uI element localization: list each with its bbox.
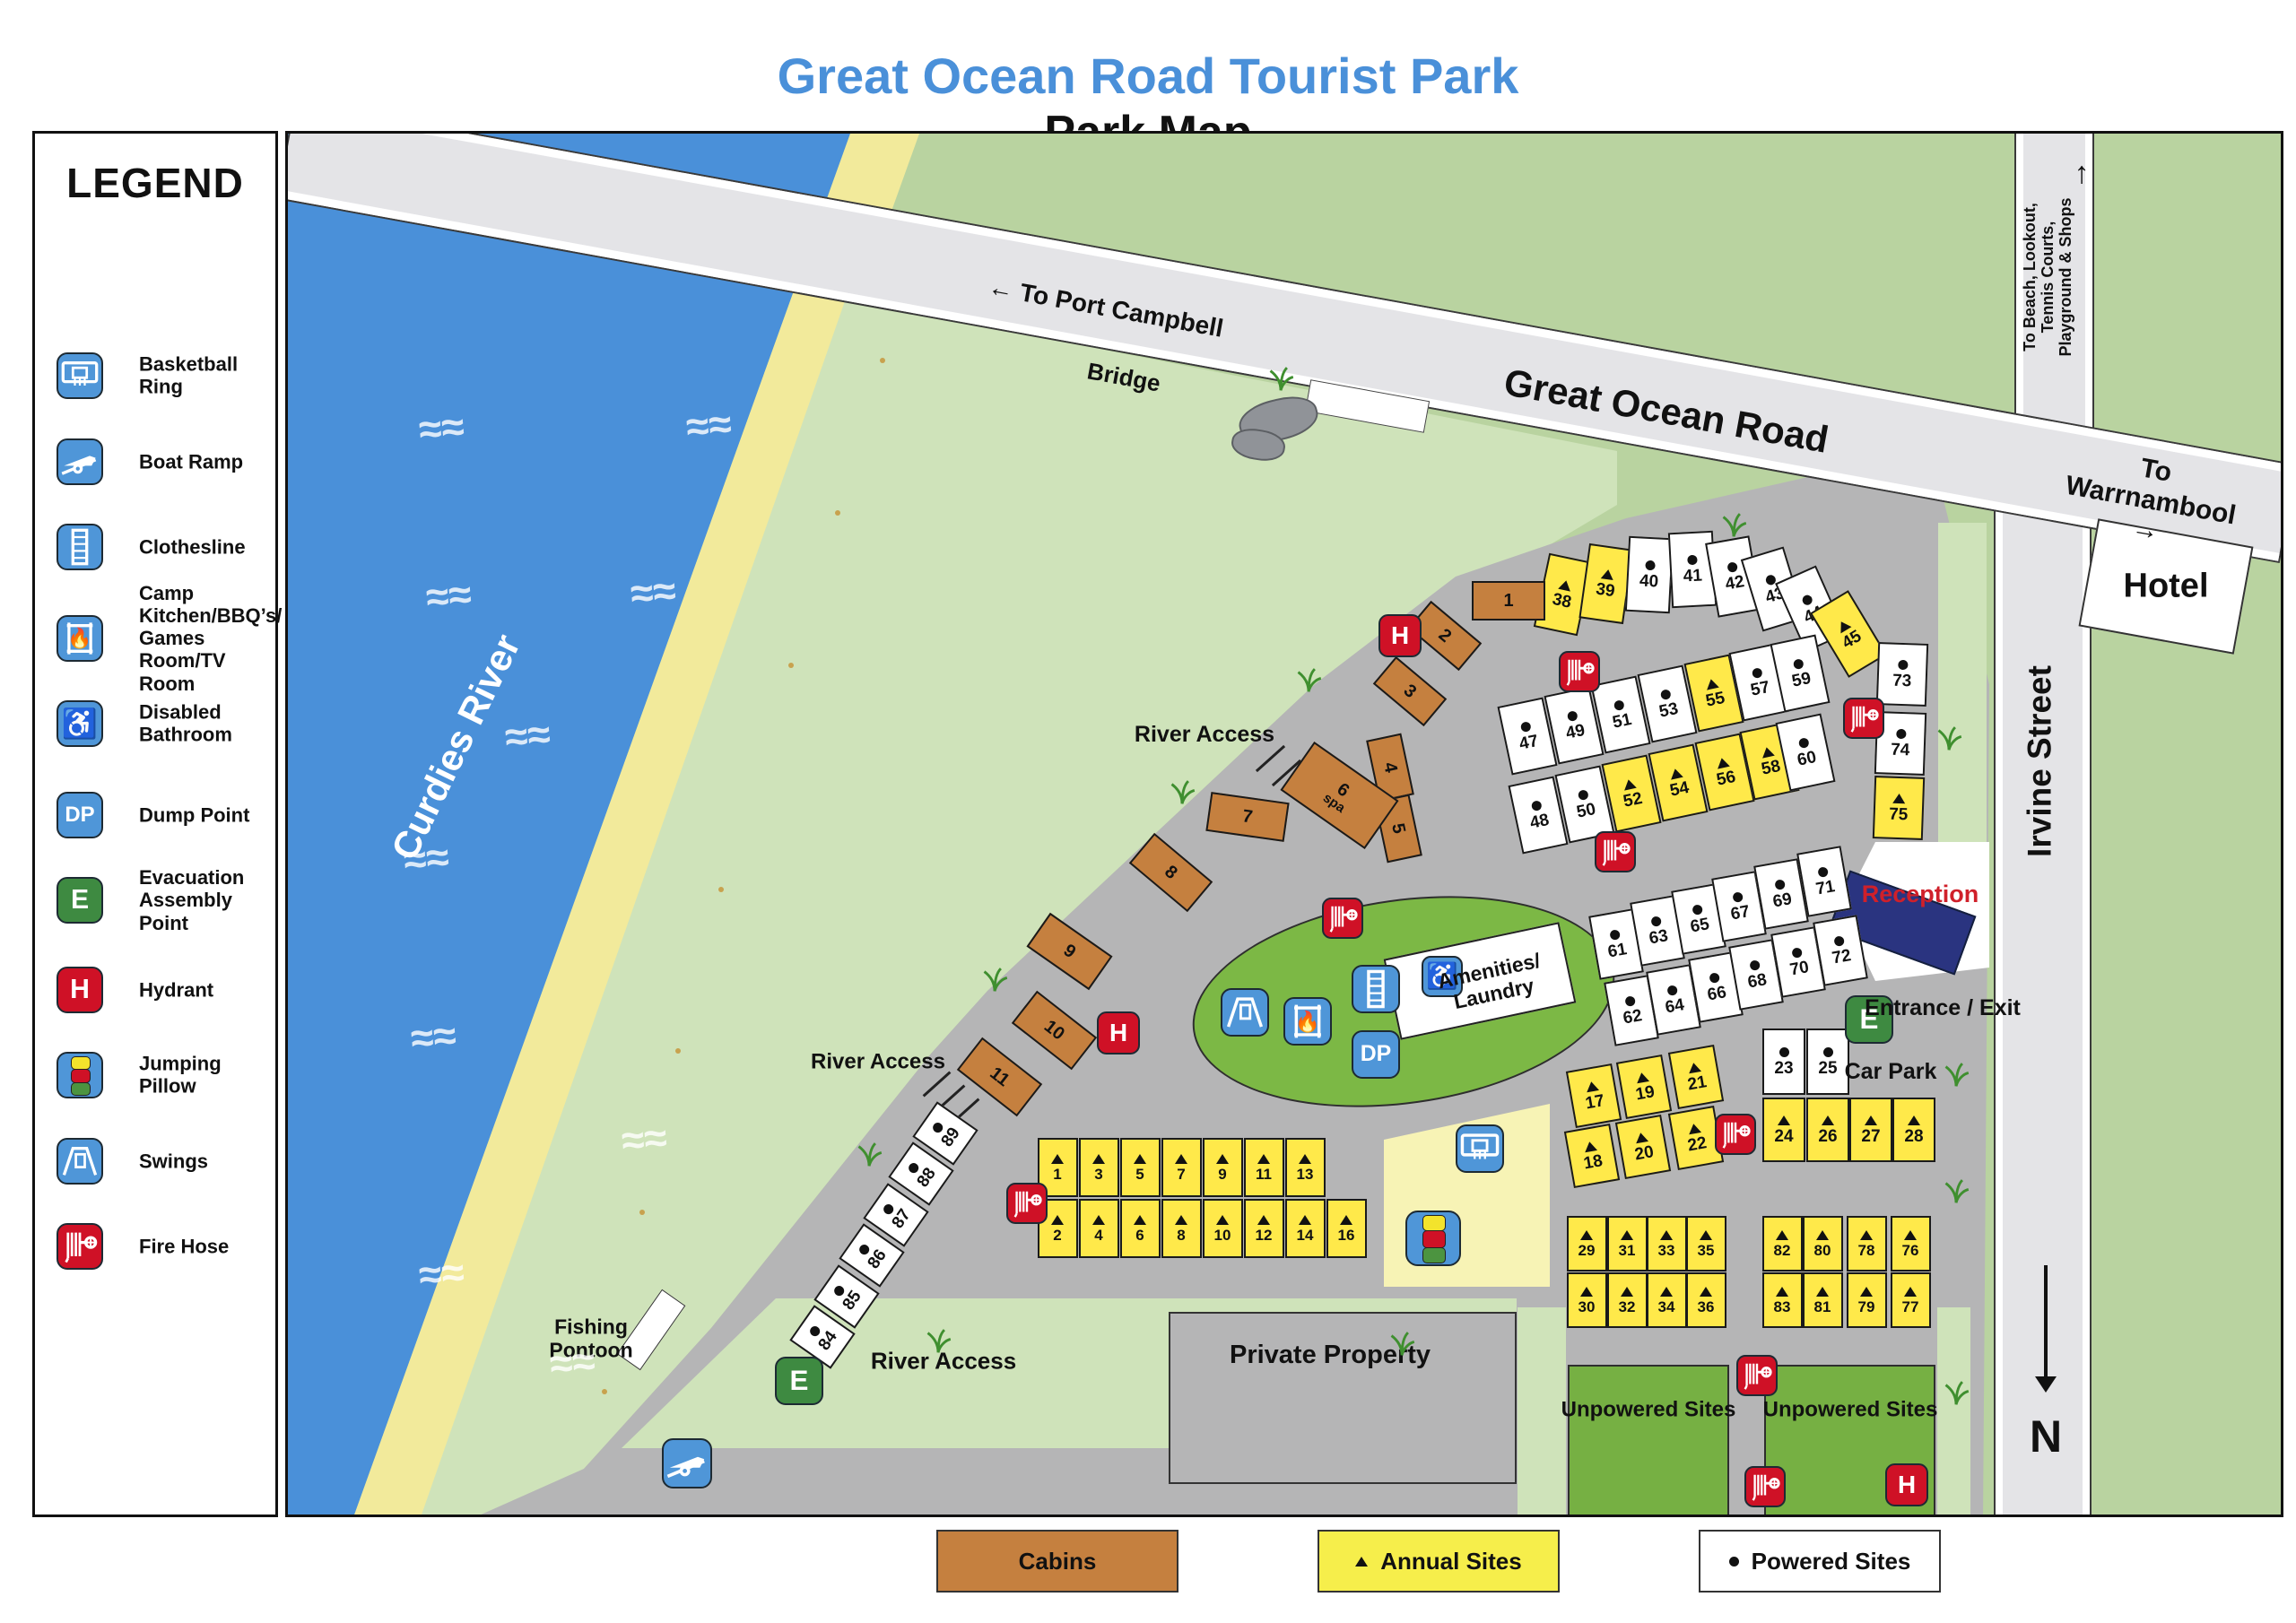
firehose-icon [1736,1355,1778,1396]
footer-cabins-label: Cabins [1019,1548,1097,1575]
annual-triangle-icon [1816,1287,1829,1297]
sand-dot [718,887,724,892]
site-number: 8 [1177,1228,1185,1243]
site-number: 20 [1633,1143,1655,1163]
powered-dot-icon [1666,985,1678,996]
hydrant-icon: H [1885,1463,1928,1506]
legend-item-jpillow: Jumping Pillow [57,1048,263,1102]
powered-dot-icon [1687,554,1698,565]
map-label-river-access-left: River Access [811,1051,945,1075]
grass-decoration [918,1315,959,1357]
site-number: 32 [1619,1299,1636,1315]
legend-item-label: Hydrant [139,978,213,1001]
legend-item-label: Boat Ramp [139,450,243,473]
annual-triangle-icon [1687,1062,1701,1073]
firehose-icon [1559,651,1600,692]
site-number: 54 [1668,778,1691,799]
footer-annual-box: Annual Sites [1318,1530,1560,1593]
site-number: 47 [1518,732,1540,752]
boat-icon [662,1438,712,1488]
site-number: 14 [1297,1228,1314,1243]
cabin-number: 3 [1400,681,1419,701]
annual-triangle-icon [1216,1154,1229,1164]
dp-icon: DP [57,792,103,838]
powered-dot-icon [1729,1557,1739,1567]
annual-triangle-icon [1716,756,1730,768]
annual-triangle-icon [1776,1230,1788,1240]
site-cell-83: 83 [1762,1272,1803,1328]
private-property-area [1169,1312,1517,1484]
site-number: 30 [1578,1299,1596,1315]
annual-triangle-icon [1860,1230,1873,1240]
site-cell-33: 33 [1647,1216,1687,1271]
site-cell-5: 5 [1120,1138,1161,1197]
legend-item-hydrant: HHydrant [57,963,263,1017]
site-cell-26: 26 [1806,1098,1849,1162]
grass-decoration [1935,1367,1977,1409]
annual-triangle-icon [1580,1230,1593,1240]
disabled-icon: ♿ [57,700,103,747]
firehose-icon [1715,1114,1756,1155]
site-number: 7 [1177,1167,1185,1182]
site-cell-30: 30 [1567,1272,1607,1328]
site-number: 78 [1858,1243,1875,1258]
legend-item-boat: Boat Ramp [57,435,263,489]
wave-decoration: ≈≈ [684,399,734,451]
site-cell-29: 29 [1567,1216,1607,1271]
site-number: 21 [1686,1073,1708,1093]
site-number: 77 [1902,1299,1919,1315]
site-number: 36 [1698,1299,1715,1315]
site-cell-76: 76 [1891,1216,1931,1271]
site-number: 23 [1774,1060,1793,1077]
sand-dot [675,1048,681,1054]
site-number: 71 [1814,878,1836,898]
unpowered-sites-area-left [1568,1365,1729,1517]
site-number: 41 [1683,567,1702,585]
annual-triangle-icon [1865,1115,1877,1125]
annual-triangle-icon [1092,1154,1105,1164]
powered-dot-icon [1726,561,1738,573]
page: Great Ocean Road Tourist Park Park Map L… [0,0,2296,1623]
site-number: 18 [1582,1152,1604,1172]
powered-dot-icon [1898,659,1908,669]
powered-dot-icon [1566,710,1578,722]
grass-decoration [848,1129,890,1170]
annual-triangle-icon [1051,1154,1064,1164]
site-number: 59 [1790,669,1813,690]
map-label-unpowered-left: Unpowered Sites [1561,1399,1736,1423]
site-cell-4: 4 [1079,1199,1119,1258]
site-number: 57 [1749,678,1771,699]
site-number: 66 [1706,984,1727,1003]
firehose-icon [57,1223,103,1270]
map-label-car-park: Car Park [1845,1059,1937,1084]
annual-triangle-icon [1660,1230,1673,1240]
map-label-n-compass: N [2030,1411,2062,1462]
legend-item-firehose: Fire Hose [57,1219,263,1273]
annual-triangle-icon [1134,1215,1146,1225]
annual-triangle-icon [1621,1230,1633,1240]
site-number: 13 [1297,1167,1314,1182]
sand-dot [602,1389,607,1394]
site-number: 52 [1622,789,1644,810]
site-cell-28: 28 [1892,1098,1935,1162]
site-number: 1 [1053,1167,1061,1182]
site-cell-13: 13 [1285,1138,1326,1197]
site-number: 11 [1256,1167,1272,1182]
camp-icon: 🔥 [1283,997,1332,1046]
hydrant-icon: H [1378,614,1422,657]
wave-decoration: ≈≈ [402,832,451,884]
powered-dot-icon [1624,995,1636,1007]
site-cell-79: 79 [1847,1272,1887,1328]
firehose-icon [1843,698,1884,739]
powered-dot-icon [1659,689,1671,700]
site-number: 63 [1648,927,1669,947]
jpillow-icon [57,1052,103,1098]
site-number: 73 [1892,672,1912,690]
cabin-number: 8 [1161,863,1179,882]
map-label-river-access-top: River Access [1135,722,1274,747]
site-number: 69 [1771,890,1793,910]
site-cell-40: 40 [1625,536,1674,614]
grass-decoration [1161,767,1203,808]
legend-item-camp: 🔥Camp Kitchen/BBQ’s/ Games Room/TV Room [57,612,263,665]
map-label-unpowered-right: Unpowered Sites [1763,1399,1938,1423]
grass-decoration [1381,1318,1422,1359]
footer-cabins-box: Cabins [936,1530,1178,1593]
map-label-hotel: Hotel [2124,568,2209,606]
powered-dot-icon [1645,560,1656,570]
annual-triangle-icon [1051,1215,1064,1225]
annual-triangle-icon [1860,1287,1873,1297]
site-cell-81: 81 [1803,1272,1843,1328]
camp-icon: 🔥 [57,615,103,662]
site-cell-7: 7 [1161,1138,1202,1197]
site-cell-35: 35 [1686,1216,1726,1271]
site-cell-8: 8 [1161,1199,1202,1258]
annual-triangle-icon [1355,1557,1368,1567]
annual-triangle-icon [1776,1287,1788,1297]
site-cell-27: 27 [1849,1098,1892,1162]
site-number: 27 [1861,1128,1880,1145]
site-cell-25: 25 [1806,1028,1849,1095]
page-title: Great Ocean Road Tourist Park [0,47,2296,105]
legend-item-basketball: Basketball Ring [57,349,263,403]
powered-dot-icon [1791,947,1803,959]
legend-item-dp: DPDump Point [57,788,263,842]
site-number: 61 [1606,941,1628,960]
site-cell-17: 17 [1566,1063,1622,1128]
site-number: 39 [1595,580,1616,600]
annual-triangle-icon [1175,1215,1187,1225]
site-cell-73: 73 [1876,642,1928,707]
annual-triangle-icon [1761,745,1775,758]
annual-triangle-icon [1635,1072,1649,1083]
site-number: 76 [1902,1243,1919,1258]
site-number: 2 [1053,1228,1061,1243]
cabin-number: 4 [1380,760,1400,774]
annual-triangle-icon [1558,578,1572,591]
site-number: 22 [1686,1134,1708,1154]
wave-decoration: ≈≈ [424,569,474,621]
legend-item-label: Fire Hose [139,1235,229,1257]
hydrant-icon: H [57,967,103,1013]
site-cell-80: 80 [1803,1216,1843,1271]
legend-panel: LEGEND Basketball RingBoat RampClothesli… [32,131,278,1517]
boat-icon [57,438,103,485]
evac-icon: E [57,877,103,924]
cabin-number: 2 [1435,626,1454,646]
site-number: 31 [1619,1243,1636,1258]
site-number: 75 [1889,805,1909,823]
annual-triangle-icon [1580,1287,1593,1297]
site-cell-78: 78 [1847,1216,1887,1271]
site-number: 83 [1774,1299,1791,1315]
site-number: 3 [1094,1167,1102,1182]
powered-dot-icon [1530,800,1542,811]
site-number: 33 [1658,1243,1675,1258]
legend-item-clothes: Clothesline [57,520,263,574]
annual-triangle-icon [1622,777,1637,790]
site-number: 35 [1698,1243,1715,1258]
wave-decoration: ≈≈ [409,1011,458,1063]
park-map: 3839404142434445474951535557594850525456… [285,131,2283,1517]
powered-dot-icon [1519,721,1531,733]
site-number: 17 [1584,1092,1605,1112]
grass-decoration [1928,713,1970,754]
powered-dot-icon [1779,1047,1789,1057]
annual-triangle-icon [1585,1081,1599,1092]
site-number: 68 [1746,971,1768,991]
cabin-number: 1 [1503,592,1513,610]
site-number: 19 [1634,1083,1656,1103]
wave-decoration: ≈≈ [620,1113,669,1165]
powered-dot-icon [1609,929,1621,941]
legend-item-label: Swings [139,1150,208,1172]
site-number: 60 [1796,748,1818,768]
site-number: 25 [1818,1060,1837,1077]
site-number: 51 [1611,710,1633,731]
site-number: 64 [1664,996,1685,1016]
site-number: 26 [1818,1128,1837,1145]
site-number: 4 [1094,1228,1102,1243]
wave-decoration: ≈≈ [629,566,678,618]
annual-triangle-icon [1299,1154,1311,1164]
annual-triangle-icon [1634,1132,1648,1143]
green-strip [1937,1307,1970,1517]
powered-dot-icon [1613,699,1624,711]
powered-dot-icon [1833,935,1845,947]
site-cell-34: 34 [1647,1272,1687,1328]
powered-dot-icon [1792,658,1804,670]
legend-item-label: Dump Point [139,803,249,826]
site-cell-20: 20 [1615,1115,1671,1179]
map-label-entrance-exit: Entrance / Exit [1865,995,2021,1020]
annual-triangle-icon [1216,1215,1229,1225]
site-number: 6 [1135,1228,1144,1243]
wave-decoration: ≈≈ [417,402,466,454]
legend-item-disabled: ♿Disabled Bathroom [57,697,263,751]
powered-dot-icon [1709,972,1720,984]
swings-icon [1221,988,1269,1037]
site-cell-16: 16 [1326,1199,1367,1258]
site-number: 49 [1564,721,1587,742]
north-arrow [2044,1265,2048,1378]
map-label-to-beach-arrow: ↑ [2074,156,2090,190]
hydrant-icon: H [1097,1011,1140,1055]
legend-item-label: Disabled Bathroom [139,701,232,747]
annual-triangle-icon [1816,1230,1829,1240]
sand-dot [880,358,885,363]
annual-triangle-icon [1340,1215,1352,1225]
annual-triangle-icon [1700,1287,1712,1297]
annual-triangle-icon [1904,1287,1917,1297]
site-number: 16 [1338,1228,1355,1243]
site-number: 67 [1729,903,1751,923]
cabin-number: 10 [1040,1017,1067,1043]
firehose-icon [1006,1183,1048,1224]
site-cell-75: 75 [1873,776,1925,840]
site-number: 62 [1622,1007,1643,1027]
site-cell-21: 21 [1668,1045,1724,1109]
sand-dot [639,1210,645,1215]
firehose-icon [1595,831,1636,872]
jpillow-icon [1405,1211,1461,1266]
annual-triangle-icon [1892,793,1905,803]
north-arrow-head [2035,1376,2057,1393]
wave-decoration: ≈≈ [417,1247,466,1299]
powered-dot-icon [1749,959,1761,971]
site-cell-11: 11 [1244,1138,1284,1197]
site-number: 48 [1528,811,1551,831]
legend-title: LEGEND [35,159,275,207]
grass-decoration [1260,353,1301,395]
site-cell-9: 9 [1203,1138,1243,1197]
sand-dot [835,510,840,516]
site-number: 70 [1788,959,1810,978]
site-number: 53 [1657,699,1680,720]
annual-triangle-icon [1175,1154,1187,1164]
site-number: 50 [1575,800,1597,820]
annual-triangle-icon [1583,1141,1597,1152]
annual-triangle-icon [1700,1230,1712,1240]
map-label-reception: Reception [1862,881,1979,907]
site-cell-23: 23 [1762,1028,1805,1095]
annual-triangle-icon [1257,1215,1270,1225]
annual-triangle-icon [1660,1287,1673,1297]
firehose-icon [1744,1466,1786,1507]
site-number: 82 [1774,1243,1791,1258]
cabin-number: 9 [1060,942,1079,962]
clothes-icon [57,524,103,570]
site-number: 81 [1814,1299,1831,1315]
legend-item-label: Evacuation Assembly Point [139,866,263,934]
site-cell-19: 19 [1616,1055,1672,1119]
map-label-irvine-street: Irvine Street [2021,665,2057,857]
grass-decoration [974,954,1015,995]
basketball-icon [57,352,103,399]
legend-item-label: Jumping Pillow [139,1053,263,1098]
evac-icon: E [775,1357,823,1405]
site-cell-18: 18 [1564,1124,1620,1188]
annual-triangle-icon [1778,1115,1790,1125]
site-cell-77: 77 [1891,1272,1931,1328]
wave-decoration: ≈≈ [548,1336,597,1388]
dp-icon: DP [1352,1030,1400,1079]
legend-item-label: Camp Kitchen/BBQ’s/ Games Room/TV Room [139,581,282,694]
powered-dot-icon [1732,891,1744,903]
site-number: 5 [1135,1167,1144,1182]
annual-triangle-icon [1257,1154,1270,1164]
grass-decoration [1713,499,1754,541]
site-cell-12: 12 [1244,1199,1284,1258]
footer-annual-label: Annual Sites [1380,1548,1521,1575]
site-number: 12 [1256,1228,1273,1243]
site-number: 56 [1715,768,1737,788]
wave-decoration: ≈≈ [503,709,552,761]
annual-triangle-icon [1621,1287,1633,1297]
site-number: 10 [1214,1228,1231,1243]
powered-dot-icon [1817,866,1829,878]
annual-triangle-icon [1299,1215,1311,1225]
cabin-number: 5 [1388,821,1408,835]
firehose-icon [1322,898,1363,939]
footer-powered-label: Powered Sites [1752,1548,1911,1575]
site-cell-36: 36 [1686,1272,1726,1328]
site-number: 38 [1551,590,1573,611]
annual-triangle-icon [1134,1154,1146,1164]
site-number: 72 [1831,947,1852,967]
grass-decoration [1935,1166,1977,1207]
sand-dot [788,663,794,668]
legend-item-label: Clothesline [139,535,246,558]
annual-triangle-icon [1904,1230,1917,1240]
clothes-icon [1352,965,1400,1013]
legend-item-evac: EEvacuation Assembly Point [57,873,263,927]
site-cell-14: 14 [1285,1199,1326,1258]
powered-dot-icon [1823,1047,1833,1057]
powered-dot-icon [1692,904,1703,916]
powered-dot-icon [1797,737,1809,749]
site-number: 29 [1578,1243,1596,1258]
annual-triangle-icon [1908,1115,1920,1125]
site-number: 40 [1639,572,1659,590]
powered-dot-icon [1896,728,1906,738]
site-cell-10: 10 [1203,1199,1243,1258]
powered-dot-icon [1650,916,1662,927]
footer-powered-box: Powered Sites [1699,1530,1941,1593]
grass-decoration [1288,655,1329,696]
green-strip [1938,523,1987,855]
legend-item-label: Basketball Ring [139,353,263,399]
site-cell-3: 3 [1079,1138,1119,1197]
annual-triangle-icon [1687,1123,1701,1134]
powered-dot-icon [1751,667,1762,679]
legend-item-swings: Swings [57,1134,263,1188]
cabin-number: 11 [987,1064,1013,1090]
site-cell-31: 31 [1607,1216,1648,1271]
grass-decoration [1935,1049,1977,1090]
site-cell-82: 82 [1762,1216,1803,1271]
site-number: 9 [1218,1167,1226,1182]
site-cell-24: 24 [1762,1098,1805,1162]
swings-icon [57,1138,103,1185]
site-number: 58 [1760,757,1782,777]
site-number: 80 [1814,1243,1831,1258]
annual-triangle-icon [1705,677,1719,690]
